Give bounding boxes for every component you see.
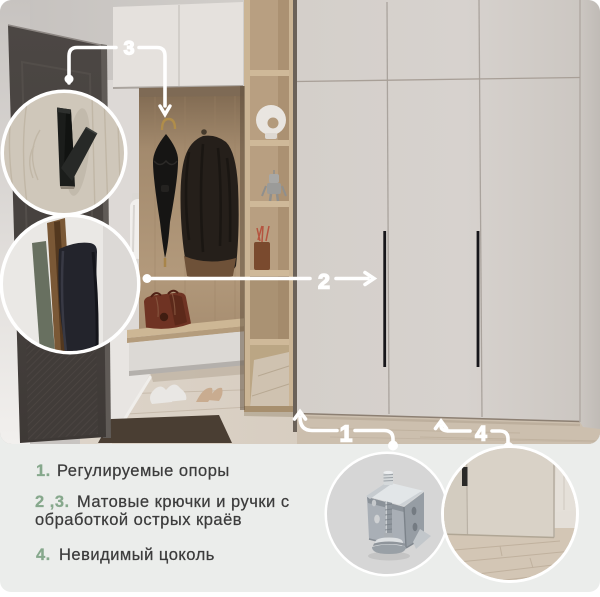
svg-text:2: 2: [318, 270, 330, 294]
svg-text:4.Невидимый цоколь: 4.Невидимый цоколь: [36, 546, 215, 564]
svg-text:обработкой острых краёв: обработкой острых краёв: [35, 511, 242, 529]
svg-text:4: 4: [475, 423, 487, 446]
svg-text:1: 1: [340, 421, 353, 447]
svg-text:1.Регулируемые опоры: 1.Регулируемые опоры: [36, 462, 230, 480]
svg-text:3: 3: [124, 38, 135, 60]
